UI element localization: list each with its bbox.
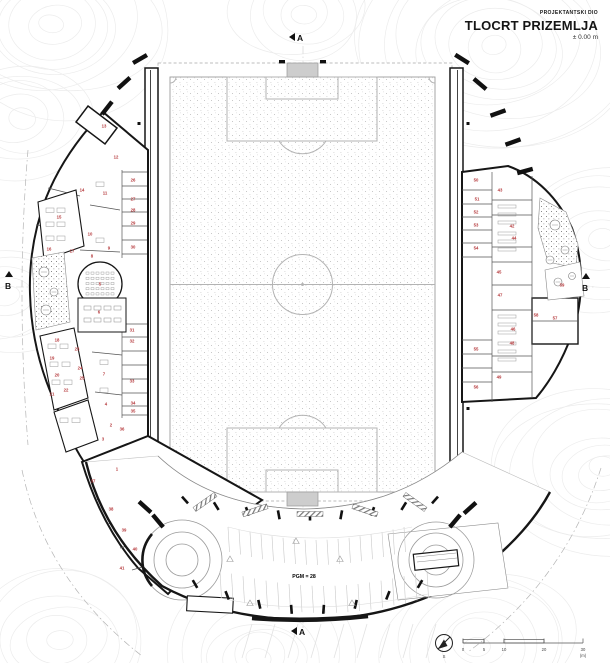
room-number-label: 10: [88, 232, 93, 237]
room-number-label: 55: [474, 347, 479, 352]
contour-line: [224, 0, 369, 60]
room-number-label: 40: [133, 547, 138, 552]
section-a-bottom-label: A: [299, 627, 305, 637]
hatched-wall: [297, 512, 323, 517]
room-number-label: 56: [474, 385, 479, 390]
section-b-right-label: B: [582, 283, 588, 293]
contour-line: [26, 2, 84, 48]
room-number-label: 44: [512, 236, 517, 241]
retaining-wall-bar: [505, 137, 522, 147]
room-number-label: 23: [75, 347, 80, 352]
scale-bar: [463, 639, 583, 644]
room-number-label: 36: [120, 427, 125, 432]
contour-line: [291, 5, 318, 25]
goal-anchor-left: [279, 60, 285, 63]
title-block: PROJEKTANTSKI DIO TLOCRT PRIZEMLJA ± 0.0…: [465, 10, 598, 41]
room-number-label: 19: [50, 356, 55, 361]
scale-bar-labels: 05102030: [462, 647, 586, 652]
scale-unit-label: (m): [580, 653, 587, 658]
room-number-label: 32: [130, 339, 135, 344]
scale-tick-label: 20: [542, 647, 547, 652]
room-number-label: 26: [131, 178, 136, 183]
room-number-label: 34: [131, 401, 136, 406]
room-number-label: 53: [474, 223, 479, 228]
contour-line: [46, 630, 74, 650]
room-number-label: 30: [131, 245, 136, 250]
room-number-label: 39: [122, 528, 127, 533]
elevation-label: ± 0.00 m: [465, 34, 598, 41]
room-number-label: 41: [120, 566, 125, 571]
room-number-label: 54: [474, 246, 479, 251]
north-goal: [287, 63, 318, 77]
contour-line: [0, 0, 108, 70]
floor-plan-sheet: PGM = 28 1234567891011121314151617181920…: [0, 0, 610, 663]
floor-plan-drawing: PGM = 28 1234567891011121314151617181920…: [0, 0, 610, 663]
room-number-label: 24: [78, 366, 83, 371]
contour-line: [276, 0, 332, 39]
contour-line: [26, 614, 88, 663]
room-number-label: 43: [498, 188, 503, 193]
room-number-label: 27: [131, 197, 136, 202]
room-number-label: 49: [497, 375, 502, 380]
retaining-wall-bar: [490, 108, 507, 118]
contour-line: [0, 0, 117, 77]
contour-line: [7, 0, 98, 63]
surface-parking-line: [357, 624, 367, 658]
room-number-label: 48: [510, 341, 515, 346]
room-number-label: 11: [103, 191, 108, 196]
contour-line: [250, 0, 356, 61]
room-number-label: 29: [131, 221, 136, 226]
meeting-room: [78, 298, 126, 332]
surface-parking-line: [426, 624, 436, 658]
section-b-left-arrow-icon: [5, 271, 13, 277]
section-b-left-label: B: [5, 281, 11, 291]
surface-parking-line: [403, 624, 413, 658]
north-label: S: [443, 654, 446, 659]
parking-count-label: PGM = 28: [292, 574, 316, 580]
garage-stair: [187, 596, 234, 613]
football-pitch: [158, 60, 452, 506]
room-number-label: 52: [474, 210, 479, 215]
site-boundary-west: [22, 150, 28, 445]
room-number-label: 59: [560, 283, 565, 288]
surface-parking-line: [311, 624, 321, 658]
section-a-top-arrow-icon: [289, 33, 295, 41]
contour-line: [0, 88, 53, 148]
room-number-label: 25: [80, 376, 85, 381]
project-part-label: PROJEKTANTSKI DIO: [465, 10, 598, 16]
room-number-label: 16: [47, 247, 52, 252]
drawing-title: TLOCRT PRIZEMLJA: [465, 18, 598, 33]
room-number-label: 35: [131, 409, 136, 414]
contour-line: [0, 0, 150, 106]
room-number-label: 15: [57, 215, 62, 220]
surface-parking-lines: [242, 624, 436, 658]
contour-line: [587, 226, 610, 251]
section-a-top-label: A: [297, 33, 303, 43]
column-dot: [467, 407, 470, 410]
room-number-label: 37: [91, 479, 96, 484]
contour-line: [0, 561, 146, 663]
room-number-label: 20: [55, 373, 60, 378]
contour-line: [37, 13, 65, 35]
room-number-label: 38: [109, 507, 114, 512]
room-number-label: 33: [130, 379, 135, 384]
room-number-label: 12: [114, 155, 119, 160]
room-number-label: 17: [70, 249, 75, 254]
south-goal: [287, 492, 318, 506]
column-dot: [467, 122, 470, 125]
room-number-label: 31: [130, 328, 135, 333]
room-number-label: 47: [498, 293, 503, 298]
column-dot: [138, 122, 141, 125]
east-ramp: [388, 522, 508, 600]
room-number-label: 42: [510, 224, 515, 229]
contour-line: [7, 106, 37, 131]
section-b-right-arrow-icon: [582, 273, 590, 279]
scale-tick-label: 5: [483, 647, 486, 652]
contour-line: [244, 646, 273, 663]
room-number-label: 57: [553, 316, 558, 321]
scale-tick-label: 30: [581, 647, 586, 652]
east-building: [462, 166, 584, 402]
room-number-label: 46: [511, 327, 516, 332]
goal-anchor-right: [320, 60, 326, 63]
room-number-label: 22: [64, 388, 69, 393]
room-number-label: 50: [474, 178, 479, 183]
contour-line: [0, 564, 145, 663]
room-number-label: 58: [534, 313, 539, 318]
room-number-label: 14: [80, 188, 85, 193]
surface-parking-line: [334, 624, 344, 658]
retaining-wall-bar: [132, 53, 148, 65]
room-number-label: 28: [131, 208, 136, 213]
contour-line: [258, 0, 349, 51]
scale-tick-label: 10: [502, 647, 507, 652]
room-number-label: 13: [102, 124, 107, 129]
contour-line: [558, 439, 610, 508]
contour-line: [0, 0, 169, 101]
room-number-label: 18: [55, 338, 60, 343]
room-number-label: 45: [497, 270, 502, 275]
room-number-label: 51: [475, 197, 480, 202]
retaining-wall-bar: [117, 76, 132, 90]
room-number-label: 21: [50, 392, 55, 397]
